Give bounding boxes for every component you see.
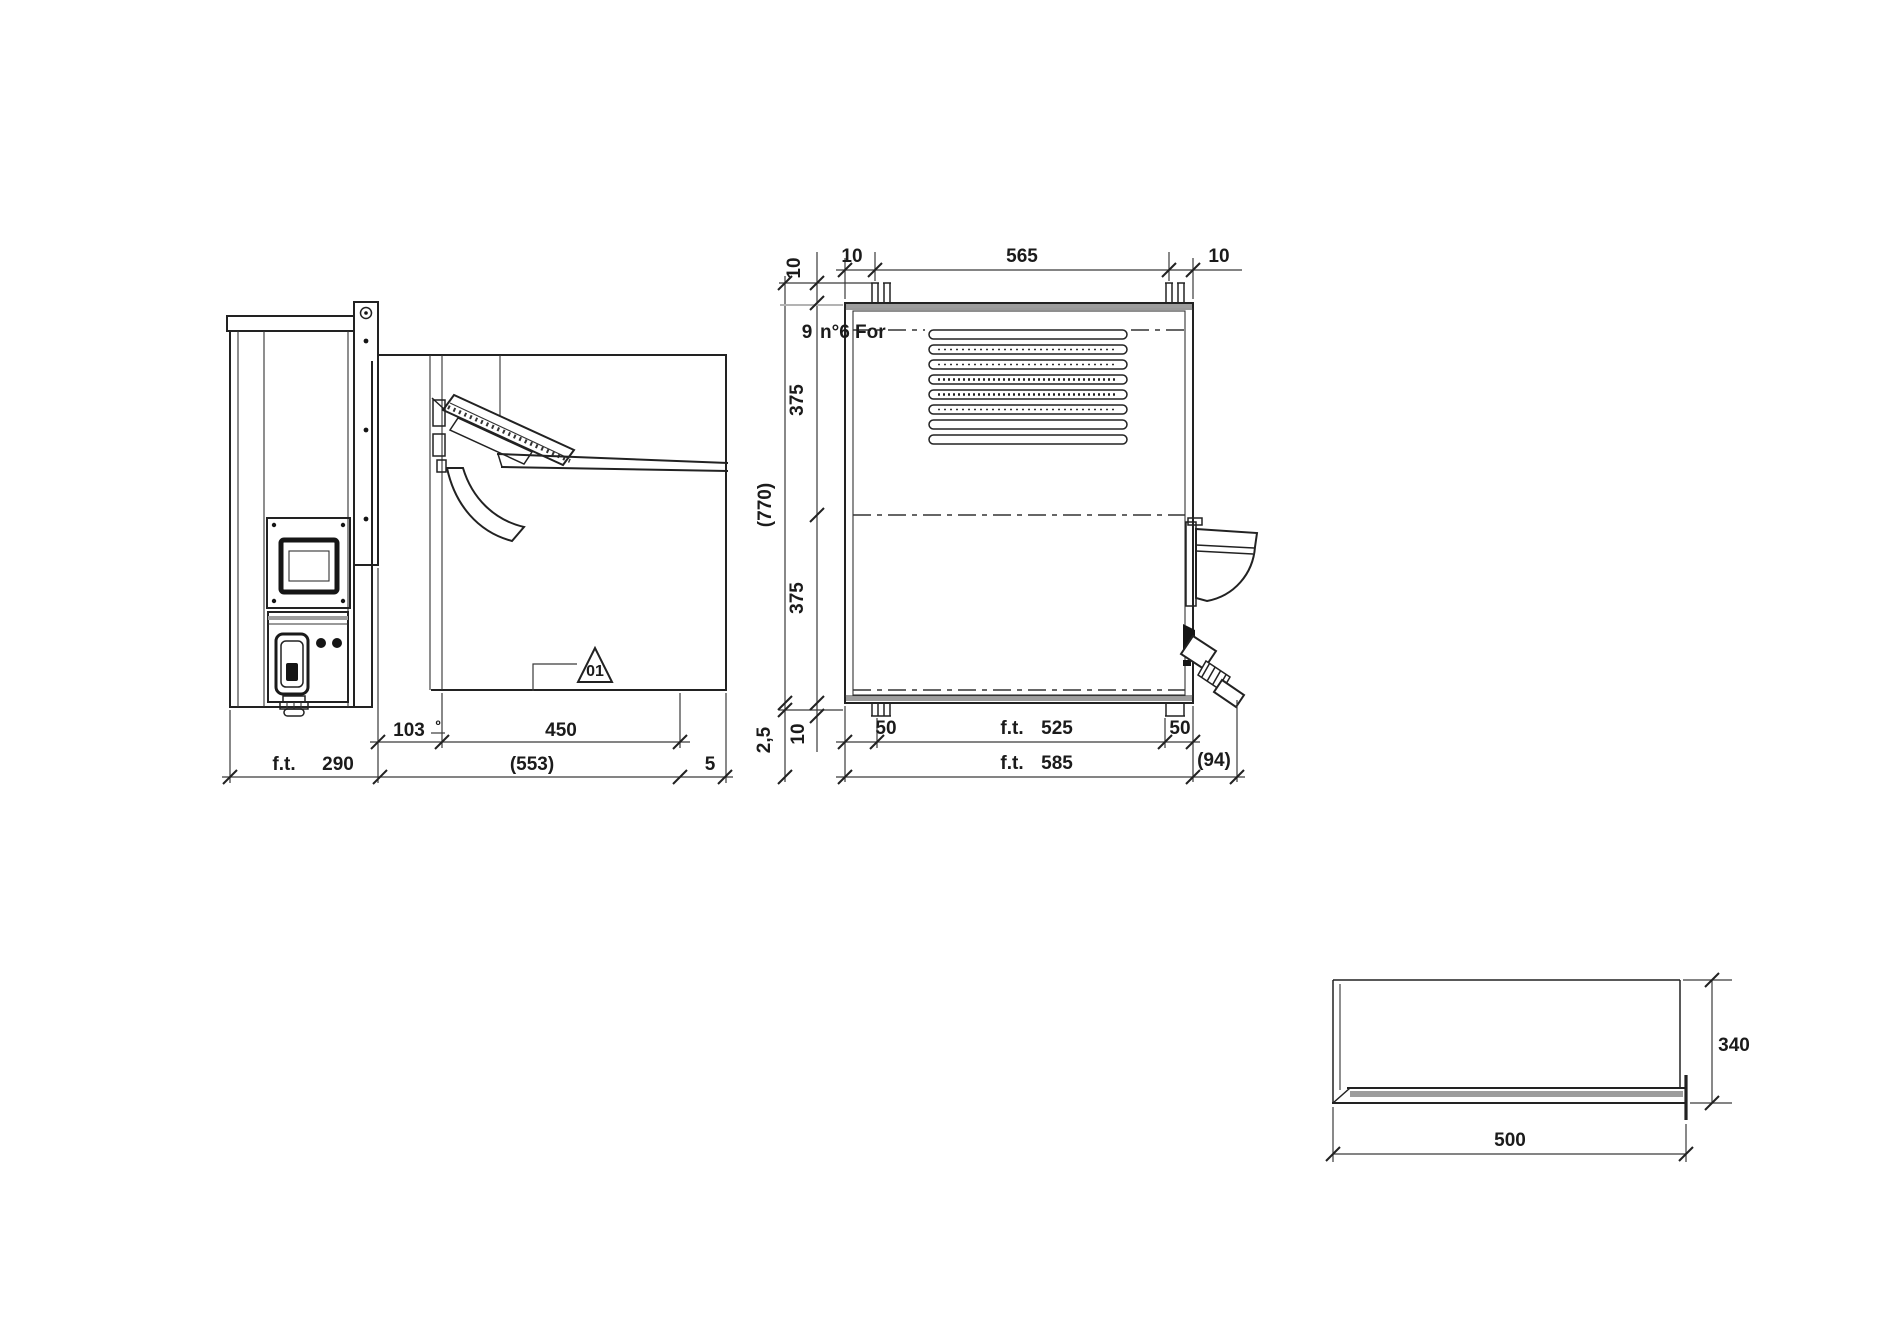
control-panel bbox=[268, 612, 348, 716]
hole-note: n°6 For bbox=[820, 322, 886, 343]
drip-tray bbox=[498, 454, 727, 471]
dim-ft-label: f.t. bbox=[272, 754, 295, 775]
dim-wall-offset: 103 bbox=[393, 720, 425, 741]
dim-top-width: 565 bbox=[1006, 246, 1038, 267]
dim-bottom-lip: 2,5 bbox=[754, 726, 775, 753]
technical-drawing-sheet: 01 103 º 450 f.t. 290 (553) 5 bbox=[0, 0, 1890, 1336]
dim-upper-half: 375 bbox=[787, 384, 808, 416]
dim-ft-label-outer: f.t. bbox=[1000, 753, 1023, 774]
hanger-tabs bbox=[871, 283, 1185, 716]
dim-edge-gap: 5 bbox=[705, 754, 716, 775]
dim-bottom-rail: 10 bbox=[788, 723, 809, 744]
machine-body-side bbox=[227, 316, 372, 707]
dim-overall-height: (770) bbox=[755, 483, 776, 527]
dim-lower-half: 375 bbox=[787, 582, 808, 614]
dim-inner-width: 525 bbox=[1041, 718, 1073, 739]
dim-hole-dia: 9 bbox=[802, 322, 813, 343]
dimension-ticks bbox=[223, 263, 1719, 1161]
panel-view: 340 500 bbox=[1333, 980, 1750, 1162]
mounting-flange bbox=[354, 302, 378, 565]
display-window bbox=[289, 551, 329, 581]
indicator-dot bbox=[316, 638, 326, 648]
dim-connector-offset: (94) bbox=[1197, 750, 1231, 771]
dim-wall-offset-sup: º bbox=[435, 717, 440, 733]
air-scoop bbox=[447, 468, 524, 541]
dim-top-right-offset: 10 bbox=[1208, 246, 1229, 267]
drain-scoop bbox=[1186, 518, 1257, 606]
rear-view-dimensions: 10 565 10 10 9 n°6 For 375 (770) 375 2,5… bbox=[754, 246, 1245, 782]
cover-panel bbox=[1333, 980, 1686, 1120]
dim-coil-length: 450 bbox=[545, 720, 577, 741]
dim-inner-overall: (553) bbox=[510, 754, 554, 775]
dim-overall-depth: 290 bbox=[322, 754, 354, 775]
dim-panel-width: 500 bbox=[1494, 1130, 1526, 1151]
drawing-canvas: 01 103 º 450 f.t. 290 (553) 5 bbox=[0, 0, 1890, 1336]
dim-bottom-left-offset: 50 bbox=[875, 718, 896, 739]
dim-ft-label-inner: f.t. bbox=[1000, 718, 1023, 739]
revision-triangle: 01 bbox=[533, 648, 612, 691]
revision-number: 01 bbox=[586, 663, 604, 680]
dim-bottom-right-offset: 50 bbox=[1169, 718, 1190, 739]
panel-view-dimensions: 340 500 bbox=[1333, 980, 1750, 1162]
dim-outer-width: 585 bbox=[1041, 753, 1073, 774]
dim-rail-height: 10 bbox=[784, 257, 805, 278]
indicator-dot bbox=[332, 638, 342, 648]
power-connector bbox=[1181, 624, 1244, 707]
rear-view: 10 565 10 10 9 n°6 For 375 (770) 375 2,5… bbox=[754, 246, 1257, 782]
side-view: 01 103 º 450 f.t. 290 (553) 5 bbox=[222, 302, 733, 783]
side-view-dimensions: 103 º 450 f.t. 290 (553) 5 bbox=[222, 568, 733, 783]
display-module bbox=[267, 518, 350, 608]
room-side-section bbox=[378, 355, 727, 690]
dim-panel-height: 340 bbox=[1718, 1035, 1750, 1056]
louvered-grille bbox=[929, 330, 1127, 444]
machine-body-rear bbox=[845, 303, 1193, 703]
evaporator-coil bbox=[432, 395, 574, 472]
